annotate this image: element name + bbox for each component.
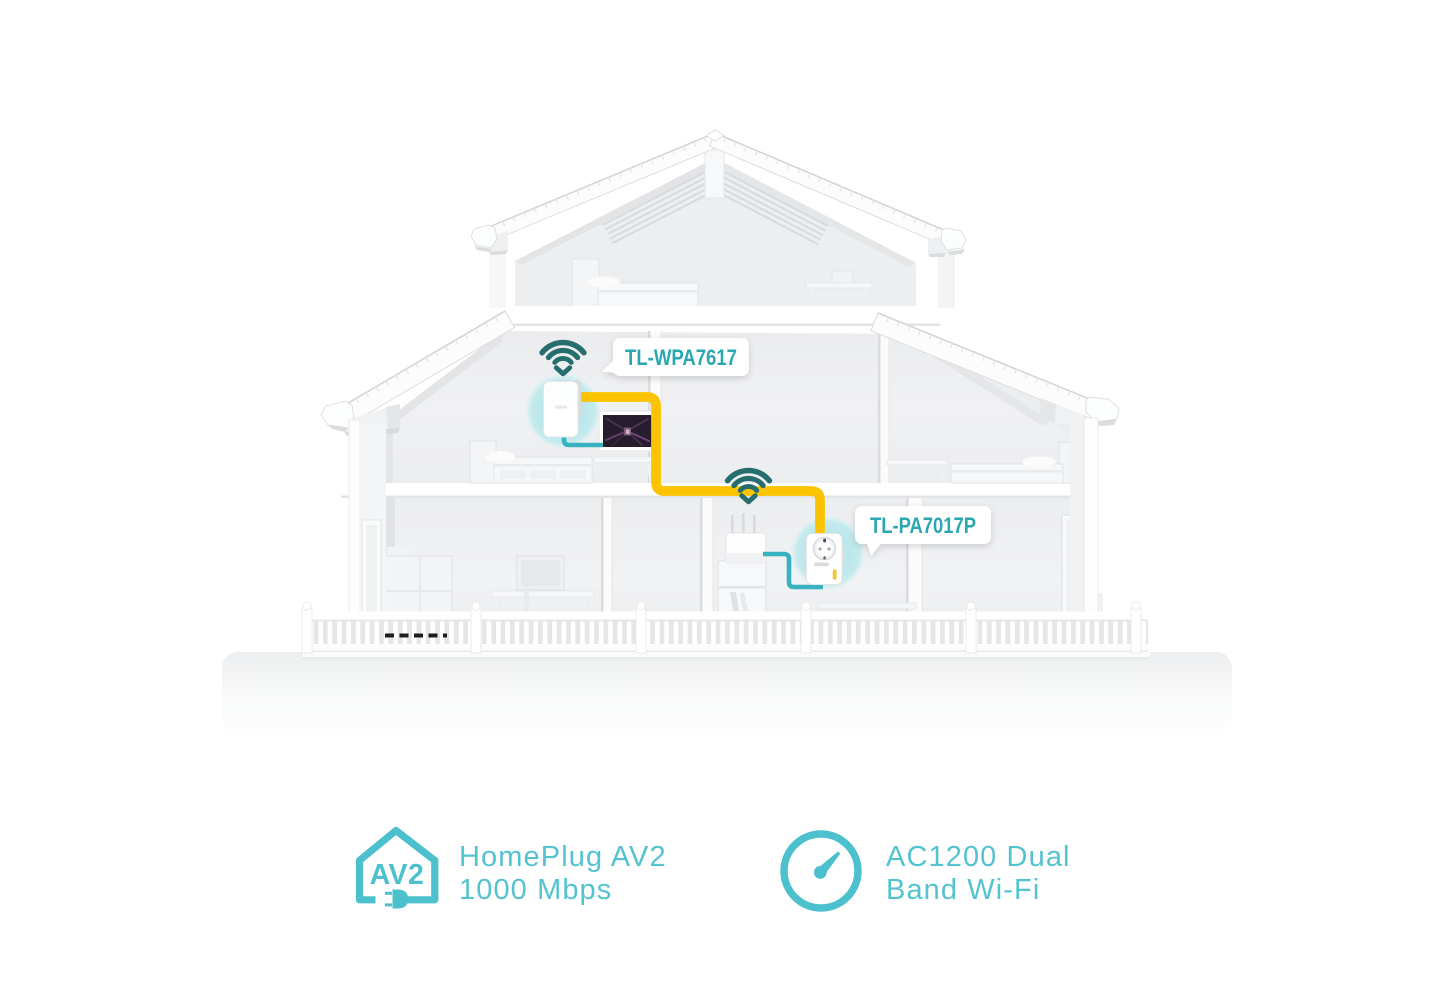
svg-text:AC1200 Dual: AC1200 Dual — [886, 841, 1071, 873]
svg-text:AV2: AV2 — [370, 859, 425, 891]
svg-text:TL-PA7017P: TL-PA7017P — [870, 513, 976, 538]
svg-text:1000 Mbps: 1000 Mbps — [459, 874, 612, 906]
svg-text:Band Wi-Fi: Band Wi-Fi — [886, 874, 1040, 906]
svg-text:HomePlug AV2: HomePlug AV2 — [459, 841, 667, 873]
svg-text:TL-WPA7617: TL-WPA7617 — [625, 345, 737, 370]
